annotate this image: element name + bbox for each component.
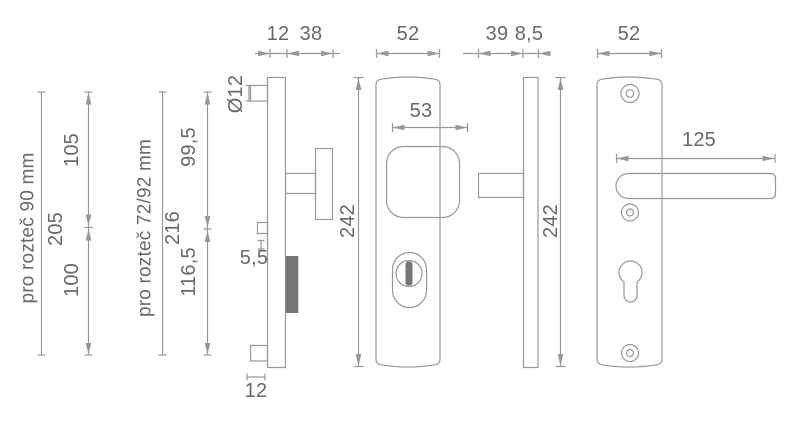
dim-label-205: 205 (46, 212, 66, 246)
dim-label-spindle-projection: 39 (486, 24, 509, 44)
dim-label-plate-thickness-outer: 12 (267, 24, 290, 44)
dim-label-105: 105 (62, 133, 82, 167)
technical-drawing-canvas: pro rozteč 90 mm 105 205 100 pro rozteč … (0, 0, 800, 421)
screw-hole-bottom (622, 345, 639, 362)
cylinder-guard-block (286, 256, 299, 313)
dim-label-inner-height: 242 (541, 204, 561, 238)
dim-label-pin-diameter: Ø12 (226, 75, 246, 113)
cylinder-slot (406, 262, 413, 286)
knob-front (387, 147, 460, 218)
lever-handle (616, 174, 776, 199)
dim-label-knob-width: 53 (410, 101, 433, 121)
dim-label-99-5: 99,5 (179, 127, 199, 167)
dim-label-plate-thickness-inner: 8,5 (515, 24, 543, 44)
screw-hole-middle (622, 204, 639, 221)
dim-label-stub-offset: 5,5 (240, 248, 268, 268)
screw-hole-top (621, 85, 639, 103)
dim-knob-width (392, 123, 468, 132)
dim-label-100: 100 (62, 263, 82, 297)
dim-label-pin-width: 12 (245, 381, 268, 401)
dim-inner-side-top (463, 49, 551, 58)
dim-lever-length (616, 154, 775, 163)
dim-label-216: 216 (163, 211, 183, 245)
reference-label-72-92mm: pro rozteč 72/92 mm (136, 139, 155, 317)
dim-label-knob-projection: 38 (300, 24, 323, 44)
inner-plate-side-view (479, 78, 539, 368)
outer-plate-side-view (251, 78, 333, 368)
dim-outer-width (376, 49, 440, 58)
dim-label-outer-width: 52 (397, 24, 420, 44)
drawing-linework (0, 0, 800, 421)
inner-plate-front-view (597, 77, 776, 367)
dim-outer-side-top (255, 49, 340, 58)
euro-profile-keyhole (619, 261, 642, 302)
dim-label-outer-height: 242 (338, 204, 358, 238)
dim-inner-width (597, 49, 662, 58)
dim-label-inner-width: 52 (618, 24, 641, 44)
reference-label-90mm: pro rozteč 90 mm (19, 152, 38, 303)
dim-label-116-5: 116,5 (179, 247, 199, 297)
dim-label-lever-length: 125 (682, 130, 716, 150)
